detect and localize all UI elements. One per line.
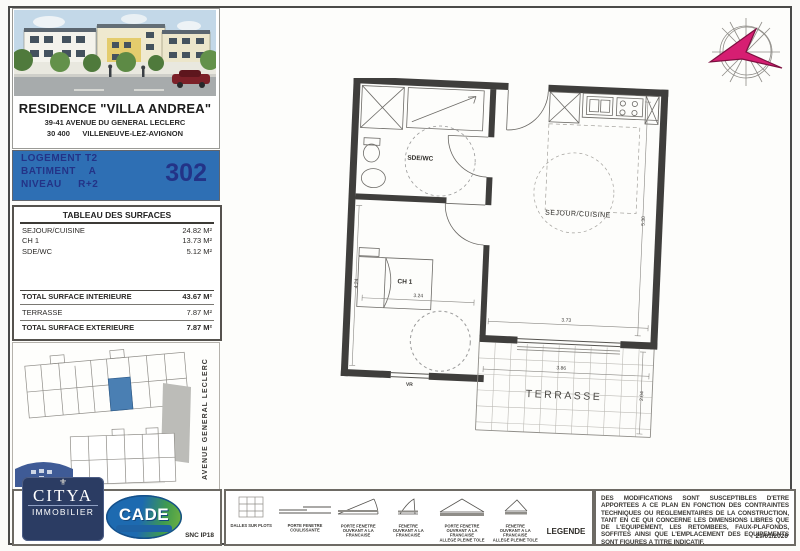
highlighted-unit: [108, 377, 133, 411]
compass-icon: [700, 12, 792, 94]
cade-strip: [116, 525, 172, 532]
french-window-solid-sill-icon: [495, 496, 535, 518]
sliding-door-icon: [277, 496, 333, 518]
table-row: SDE/WC 5.12 M²: [14, 245, 220, 256]
row-label: SEJOUR/CUISINE: [22, 226, 85, 235]
dim-sejour-width: 3.73: [561, 317, 571, 323]
legend-item: FENETRE OUVRANT A LA FRANCAISE ALLEGE PL…: [490, 491, 541, 543]
dim-terrasse-width: 3.86: [556, 365, 566, 371]
french-window-icon: [388, 496, 428, 518]
legend-box: DALLES SUR PLOTS PORTE FENETRE COULISSAN…: [224, 489, 594, 546]
faux-plafond: [545, 124, 640, 214]
closet: [407, 88, 485, 131]
window-vr: [391, 373, 429, 379]
legend-item: PORTE FENETRE OUVRANT A LA FRANCAISE ALL…: [434, 491, 490, 543]
surface-table-title: TABLEAU DES SURFACES: [20, 207, 214, 224]
terrasse-value: 7.87 M²: [187, 308, 212, 317]
address-line-2: 30 400 VILLENEUVE-LEZ-AVIGNON: [13, 129, 217, 138]
terrasse-row: TERRASSE 7.87 M²: [14, 305, 220, 317]
plan-sheet: RESIDENCE "VILLA ANDREA" 39-41 AVENUE DU…: [0, 0, 800, 551]
row-label: SDE/WC: [22, 247, 52, 256]
sde-door: [447, 135, 489, 177]
residence-name: RESIDENCE "VILLA ANDREA": [13, 101, 217, 116]
tile-grid-icon: [231, 496, 271, 518]
building-illustration: [14, 10, 216, 96]
total-interior-row: TOTAL SURFACE INTERIEURE 43.67 M²: [14, 291, 220, 302]
entry-door: [507, 90, 549, 132]
surface-table: TABLEAU DES SURFACES SEJOUR/CUISINE 24.8…: [12, 205, 222, 341]
floor-plan: SDE/WC SEJOUR/CUISINE CH 1 TERRASSE 3.24…: [336, 78, 676, 450]
total-exterior-row: TOTAL SURFACE EXTERIEURE 7.87 M²: [14, 321, 220, 332]
total-interior-label: TOTAL SURFACE INTERIEURE: [22, 292, 132, 301]
table-row: CH 1 13.73 M²: [14, 235, 220, 246]
basin: [361, 168, 386, 188]
title-block: RESIDENCE "VILLA ANDREA" 39-41 AVENUE DU…: [13, 97, 217, 146]
turning-circle: [532, 151, 615, 234]
kitchen: [549, 92, 659, 127]
row-value: 5.12 M²: [187, 247, 212, 256]
french-door-solid-sill-icon: [434, 496, 490, 518]
citya-logo: ⚜ CITYA IMMOBILIER: [22, 477, 104, 541]
address-line-1: 39-41 AVENUE DU GENERAL LECLERC: [13, 118, 217, 127]
dim-terrasse-depth: 2.04: [639, 391, 645, 401]
header-box: RESIDENCE "VILLA ANDREA" 39-41 AVENUE DU…: [12, 8, 220, 149]
room-label-sde-wc: SDE/WC: [407, 155, 434, 163]
room-label-terrasse: TERRASSE: [526, 388, 603, 403]
citya-name: CITYA: [22, 487, 104, 504]
disclaimer-box: DES MODIFICATIONS SONT SUSCEPTIBLES D'ET…: [594, 489, 796, 546]
total-interior-value: 43.67 M²: [182, 292, 212, 301]
legend-item: FENETRE OUVRANT A LA FRANCAISE: [383, 491, 434, 538]
logo-box: ⚜ CITYA IMMOBILIER CADE SNC IP18: [12, 489, 222, 546]
total-exterior-label: TOTAL SURFACE EXTERIEURE: [22, 323, 134, 332]
total-exterior-value: 7.87 M²: [187, 323, 212, 332]
window-label-vr: VR: [406, 382, 414, 388]
reference-code: SNC IP18: [185, 532, 214, 539]
row-value: 13.73 M²: [182, 236, 212, 245]
room-label-ch1: CH 1: [397, 278, 412, 286]
row-label: CH 1: [22, 236, 39, 245]
street-label: AVENUE GENERAL LECLERC: [202, 358, 209, 480]
legend-title: LEGENDE: [540, 527, 592, 544]
unit-banner: LOGEMENT T2 BATIMENT A NIVEAU R+2 302: [12, 150, 220, 201]
ch1-door: [444, 203, 486, 245]
cade-logo: CADE: [106, 495, 182, 539]
dim-sejour-depth: 5.30: [641, 216, 647, 226]
plan-date: 29/01/2020: [755, 533, 788, 540]
terrasse-label: TERRASSE: [22, 308, 62, 317]
cade-name: CADE: [106, 505, 182, 525]
legend-item: DALLES SUR PLOTS: [226, 491, 277, 528]
dimension-lines: [347, 90, 661, 435]
unit-number: 302: [165, 159, 207, 188]
dim-ch1-width: 3.24: [413, 293, 423, 299]
citya-subtitle: IMMOBILIER: [28, 505, 98, 517]
legend-item: PORTE FENETRE OUVRANT A LA FRANCAISE: [333, 491, 384, 538]
legend-item: PORTE FENETRE COULISSANTE: [277, 491, 333, 533]
row-value: 24.82 M²: [182, 226, 212, 235]
french-door-icon: [334, 496, 382, 518]
table-row: SEJOUR/CUISINE 24.82 M²: [14, 224, 220, 235]
site-plan: AVENUE GENERAL LECLERC: [12, 342, 220, 490]
sliding-bay: [517, 339, 620, 347]
room-label-sejour: SEJOUR/CUISINE: [545, 210, 611, 220]
dim-ch1-depth: 4.24: [354, 278, 360, 288]
turning-circle: [409, 310, 472, 373]
